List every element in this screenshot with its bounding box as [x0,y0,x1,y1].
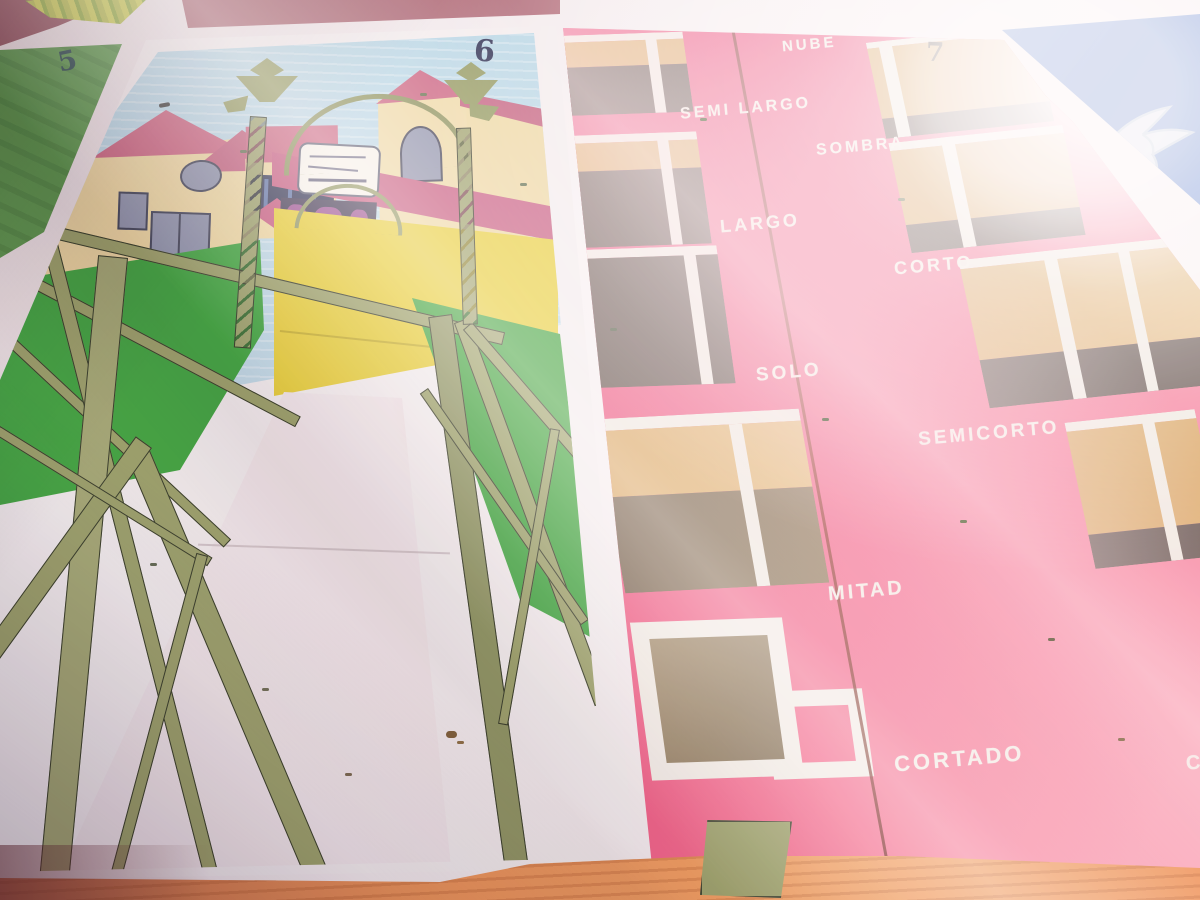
label-edge-partial: C [1185,751,1200,775]
cup-cortado-body [630,617,804,780]
truss-foot-on-lower-row [700,820,792,898]
label-cortado: CORTADO [893,740,1025,777]
panel-6-number: 6 [473,33,496,69]
plaque-script-line [308,178,366,182]
cup-cortado-coffee [649,635,784,763]
orange-strip-shadowed-corner [0,845,210,900]
debris-specks [0,0,7,3]
label-solo: SOLO [755,359,823,387]
cup-sombra [888,125,1085,253]
cup-crema [1066,418,1200,535]
label-semicorto: SEMICORTO [917,417,1060,451]
photo-canvas: 5 [0,0,1200,900]
window-slit [264,179,269,207]
cup-coffee [608,487,829,594]
label-mitad: MITAD [827,577,906,607]
label-nube: NUBE [781,34,837,56]
small-window [117,191,148,230]
cup-mitad [595,409,830,594]
panel-7-number: 7 [925,38,944,69]
cup-semicorto [1064,409,1200,569]
label-largo: LARGO [719,210,801,238]
cup-milk [597,421,813,498]
cup-corto [958,236,1200,408]
